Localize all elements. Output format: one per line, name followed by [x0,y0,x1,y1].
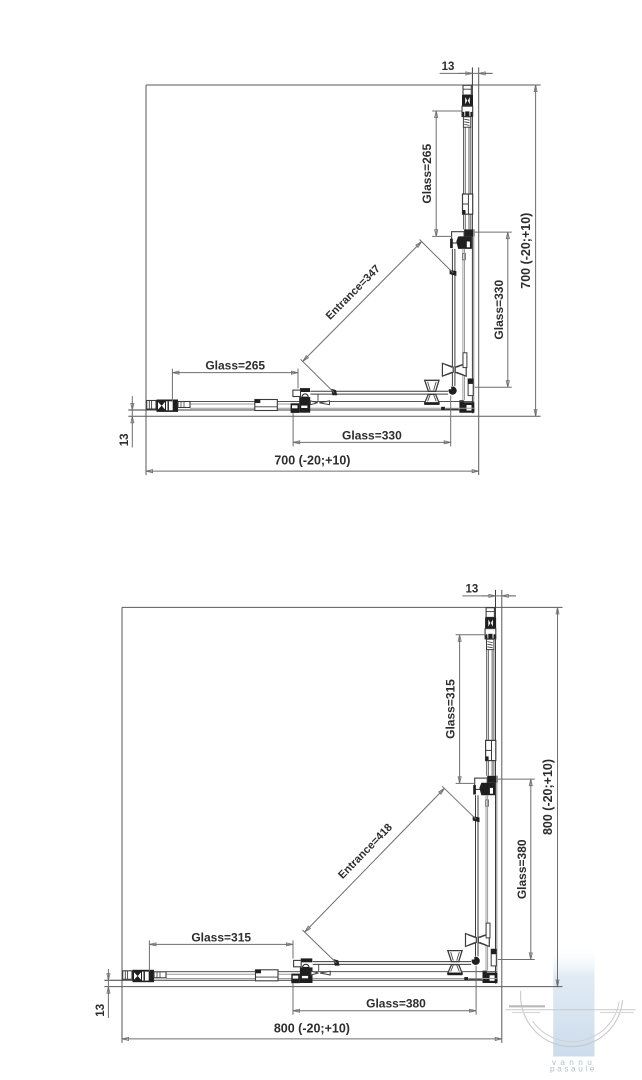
svg-text:Glass=380: Glass=380 [366,997,426,1011]
svg-text:800 (-20;+10): 800 (-20;+10) [274,1021,350,1035]
svg-text:700 (-20;+10): 700 (-20;+10) [274,454,350,468]
svg-text:13: 13 [466,583,479,595]
svg-text:Glass=315: Glass=315 [444,679,458,739]
svg-text:Glass=330: Glass=330 [342,428,402,442]
svg-text:Glass=315: Glass=315 [191,930,251,944]
svg-text:13: 13 [119,434,131,447]
svg-text:Glass=330: Glass=330 [492,280,506,340]
svg-text:13: 13 [442,61,455,73]
svg-text:Glass=380: Glass=380 [515,839,529,899]
svg-text:pasaule: pasaule [550,1065,597,1074]
svg-text:700 (-20;+10): 700 (-20;+10) [519,213,533,289]
svg-text:Glass=265: Glass=265 [420,144,434,204]
svg-text:Glass=265: Glass=265 [205,359,265,373]
svg-text:13: 13 [95,1004,107,1017]
svg-text:800 (-20;+10): 800 (-20;+10) [541,759,555,835]
